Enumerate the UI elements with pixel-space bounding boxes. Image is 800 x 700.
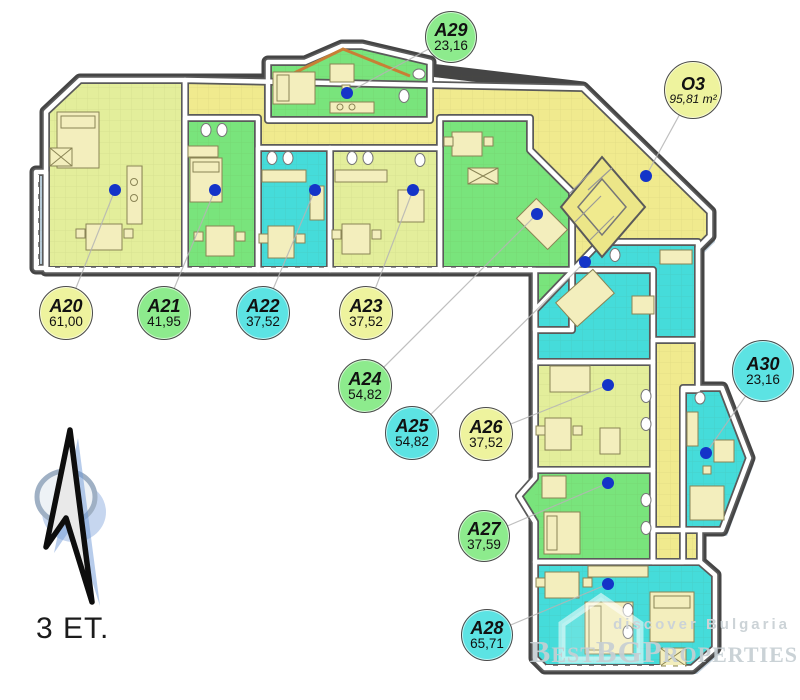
unit-label-a21[interactable]: A2141,95 bbox=[137, 286, 191, 340]
unit-label-a25[interactable]: A2554,82 bbox=[385, 406, 439, 460]
entry-dot-a26 bbox=[602, 379, 614, 391]
entry-dot-a21 bbox=[209, 184, 221, 196]
unit-label-a29[interactable]: A2923,16 bbox=[425, 11, 477, 63]
entry-dot-a24 bbox=[531, 208, 543, 220]
unit-label-a24[interactable]: A2454,82 bbox=[338, 359, 392, 413]
unit-label-a27[interactable]: A2737,59 bbox=[458, 510, 510, 562]
unit-label-o3[interactable]: O395,81 m² bbox=[664, 61, 722, 119]
unit-id-text: A27 bbox=[467, 520, 500, 538]
unit-id-text: A22 bbox=[246, 297, 279, 315]
unit-id-text: A23 bbox=[349, 297, 382, 315]
entry-dot-a29 bbox=[341, 87, 353, 99]
unit-area-text: 23,16 bbox=[434, 39, 468, 53]
entry-dot-a22 bbox=[309, 184, 321, 196]
unit-label-a23[interactable]: A2337,52 bbox=[339, 286, 393, 340]
unit-area-text: 37,59 bbox=[467, 538, 501, 552]
unit-id-text: O3 bbox=[681, 75, 705, 93]
entry-dot-a25 bbox=[579, 256, 591, 268]
unit-id-text: A20 bbox=[49, 297, 82, 315]
unit-id-text: A21 bbox=[147, 297, 180, 315]
entry-dot-o3 bbox=[640, 170, 652, 182]
unit-label-a28[interactable]: A2865,71 bbox=[461, 609, 513, 661]
unit-id-text: A24 bbox=[348, 370, 381, 388]
unit-id-text: A29 bbox=[434, 21, 467, 39]
unit-label-a26[interactable]: A2637,52 bbox=[459, 407, 513, 461]
unit-area-text: 54,82 bbox=[348, 388, 382, 402]
unit-id-text: A26 bbox=[469, 418, 502, 436]
north-arrow-icon bbox=[37, 430, 106, 606]
unit-area-text: 61,00 bbox=[49, 315, 83, 329]
unit-area-text: 37,52 bbox=[246, 315, 280, 329]
entry-dot-a20 bbox=[109, 184, 121, 196]
entry-dot-a28 bbox=[602, 578, 614, 590]
unit-id-text: A28 bbox=[470, 619, 503, 637]
unit-area-text: 65,71 bbox=[470, 637, 504, 651]
floor-label: 3 ET. bbox=[36, 612, 109, 646]
unit-area-text: 41,95 bbox=[147, 315, 181, 329]
unit-area-text: 95,81 m² bbox=[669, 93, 716, 106]
unit-id-text: A25 bbox=[395, 417, 428, 435]
unit-area-text: 54,82 bbox=[395, 435, 429, 449]
unit-label-a20[interactable]: A2061,00 bbox=[39, 286, 93, 340]
entry-dot-a27 bbox=[602, 477, 614, 489]
unit-area-text: 37,52 bbox=[469, 436, 503, 450]
entry-dot-a30 bbox=[700, 447, 712, 459]
unit-label-a30[interactable]: A3023,16 bbox=[732, 340, 794, 402]
unit-id-text: A30 bbox=[746, 355, 779, 373]
entry-dot-a23 bbox=[407, 184, 419, 196]
unit-label-a22[interactable]: A2237,52 bbox=[236, 286, 290, 340]
unit-area-text: 23,16 bbox=[746, 373, 780, 387]
unit-area-text: 37,52 bbox=[349, 315, 383, 329]
floorplan-page: A2061,00A2141,95A2237,52A2337,52A2454,82… bbox=[0, 0, 800, 700]
